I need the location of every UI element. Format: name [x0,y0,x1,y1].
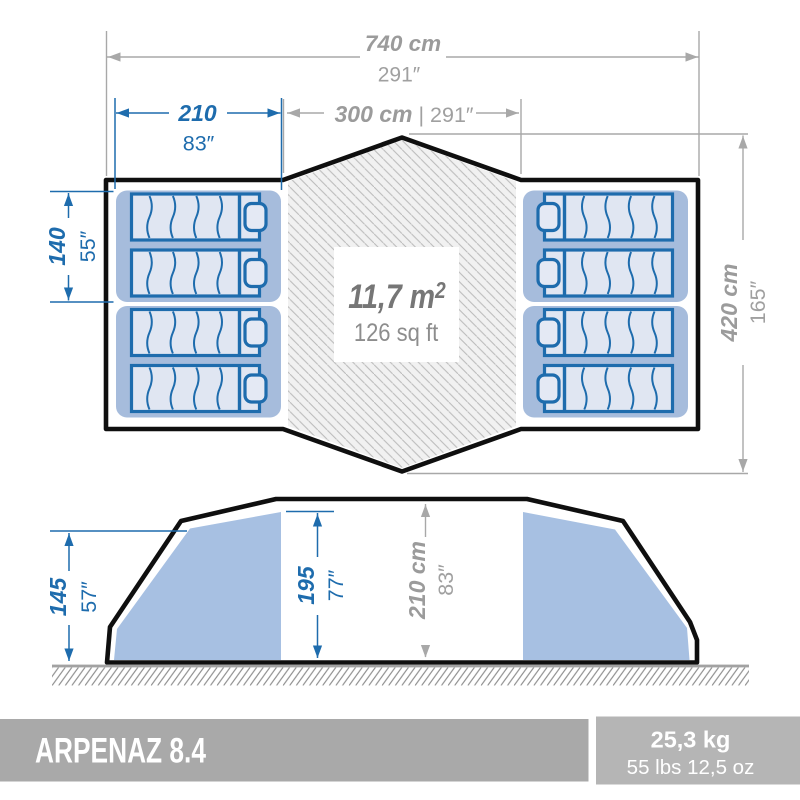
svg-text:291″: 291″ [378,64,421,87]
svg-text:210: 210 [177,100,217,126]
svg-text:210 cm: 210 cm [404,541,430,620]
svg-text:55 lbs 12,5 oz: 55 lbs 12,5 oz [627,756,755,779]
svg-text:83″: 83″ [434,564,458,596]
svg-text:25,3 kg: 25,3 kg [651,727,731,753]
svg-text:300 cm | 291″: 300 cm | 291″ [334,101,473,127]
svg-text:420 cm: 420 cm [716,263,742,342]
svg-text:145: 145 [45,577,71,617]
svg-text:77″: 77″ [324,569,348,601]
svg-text:11,7 m2: 11,7 m2 [348,278,446,316]
svg-text:83″: 83″ [183,132,215,156]
svg-text:ARPENAZ 8.4: ARPENAZ 8.4 [35,732,206,771]
svg-text:740 cm: 740 cm [365,31,441,56]
svg-text:55″: 55″ [76,230,100,262]
svg-text:195: 195 [293,565,319,605]
svg-text:140: 140 [44,227,70,266]
svg-text:57″: 57″ [77,581,101,613]
svg-text:165″: 165″ [746,280,770,324]
svg-text:126 sq ft: 126 sq ft [354,319,439,347]
